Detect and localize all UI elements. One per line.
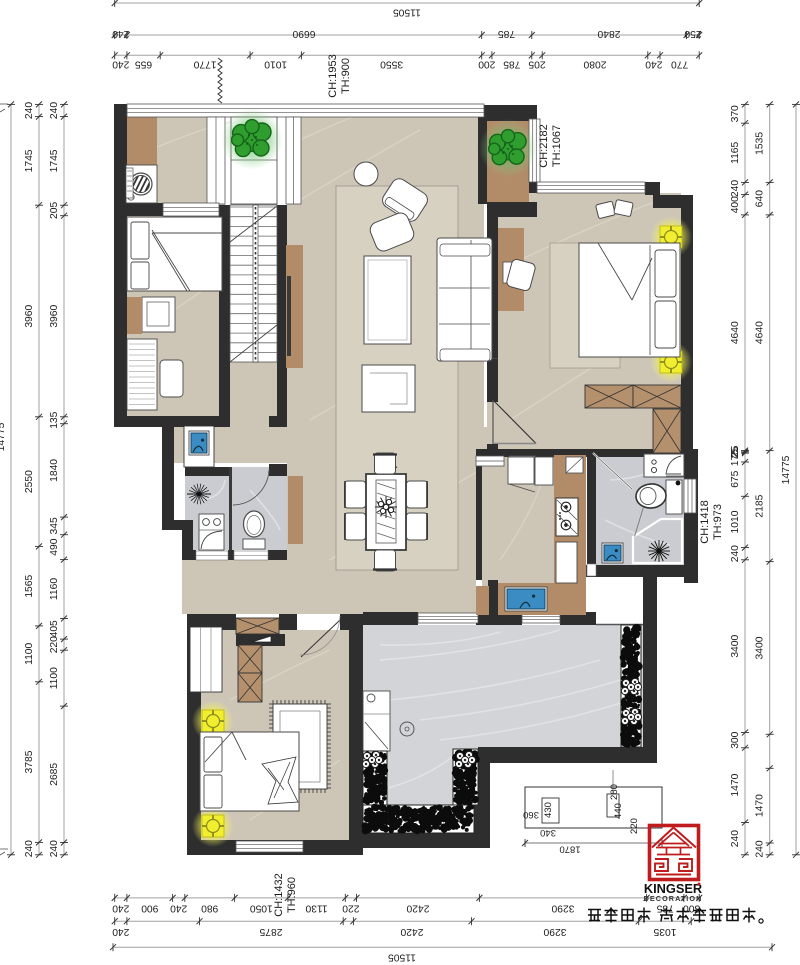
svg-text:1160: 1160 [49, 578, 60, 600]
svg-text:205: 205 [528, 59, 545, 70]
svg-text:3400: 3400 [755, 636, 766, 659]
svg-text:240: 240 [49, 102, 60, 119]
svg-text:240: 240 [112, 926, 129, 937]
svg-text:3290: 3290 [543, 926, 566, 937]
svg-text:280: 280 [609, 784, 620, 800]
svg-text:440: 440 [613, 803, 624, 819]
svg-text:3960: 3960 [49, 304, 60, 327]
svg-text:3960: 3960 [24, 304, 35, 327]
svg-text:655: 655 [135, 59, 152, 70]
svg-text:340: 340 [540, 827, 556, 838]
svg-text:175: 175 [730, 449, 741, 466]
svg-text:240: 240 [112, 59, 129, 70]
svg-text:490: 490 [49, 538, 60, 555]
svg-text:220: 220 [49, 636, 60, 653]
svg-text:14775: 14775 [781, 455, 792, 484]
svg-text:CH:1418: CH:1418 [699, 500, 711, 543]
svg-text:2420: 2420 [400, 926, 423, 937]
svg-text:675: 675 [730, 470, 741, 487]
svg-text:405: 405 [49, 620, 60, 637]
svg-text:CH:1432: CH:1432 [273, 873, 285, 916]
svg-text:1470: 1470 [755, 794, 766, 817]
svg-text:1010: 1010 [730, 510, 741, 533]
svg-text:1745: 1745 [49, 149, 60, 172]
svg-text:6690: 6690 [292, 28, 315, 39]
svg-text:2840: 2840 [597, 28, 620, 39]
svg-text:1565: 1565 [24, 574, 35, 597]
svg-text:240: 240 [112, 28, 129, 39]
svg-text:TH:1067: TH:1067 [551, 125, 563, 167]
svg-text:1100: 1100 [49, 667, 60, 689]
svg-text:1130: 1130 [305, 903, 327, 914]
svg-text:980: 980 [201, 903, 218, 914]
svg-text:360: 360 [523, 809, 539, 820]
svg-text:785: 785 [498, 28, 515, 39]
svg-text:11505: 11505 [388, 952, 416, 963]
svg-text:TH:900: TH:900 [340, 58, 352, 94]
svg-text:1535: 1535 [755, 132, 766, 155]
svg-text:1010: 1010 [264, 59, 287, 70]
svg-text:2550: 2550 [24, 470, 35, 493]
svg-text:370: 370 [730, 105, 741, 122]
svg-text:240: 240 [755, 840, 766, 857]
svg-text:240: 240 [49, 840, 60, 857]
svg-text:1035: 1035 [653, 926, 676, 937]
svg-text:1840: 1840 [49, 459, 60, 482]
svg-text:430: 430 [543, 802, 554, 818]
svg-text:1870: 1870 [559, 844, 580, 855]
svg-text:240: 240 [112, 903, 129, 914]
svg-text:1470: 1470 [730, 773, 741, 796]
svg-text:11505: 11505 [393, 7, 421, 18]
svg-text:CH:2182: CH:2182 [538, 124, 550, 167]
svg-text:2420: 2420 [406, 903, 429, 914]
svg-text:220: 220 [629, 818, 640, 834]
svg-text:200: 200 [478, 59, 495, 70]
svg-text:3290: 3290 [551, 903, 574, 914]
svg-text:205: 205 [49, 202, 60, 219]
svg-text:3550: 3550 [380, 59, 403, 70]
svg-text:240: 240 [24, 840, 35, 857]
svg-text:1050: 1050 [250, 903, 273, 914]
svg-text:770: 770 [671, 59, 688, 70]
svg-text:400: 400 [730, 196, 741, 213]
svg-text:3400: 3400 [730, 634, 741, 657]
svg-text:785: 785 [503, 59, 520, 70]
svg-text:240: 240 [645, 59, 662, 70]
svg-text:4640: 4640 [730, 321, 741, 344]
svg-text:240: 240 [730, 830, 741, 847]
svg-text:CH:1953: CH:1953 [327, 54, 339, 97]
svg-text:240: 240 [170, 903, 187, 914]
svg-text:1770: 1770 [193, 59, 216, 70]
svg-text:2080: 2080 [583, 59, 606, 70]
svg-text:TH:973: TH:973 [712, 504, 724, 540]
svg-text:220: 220 [342, 903, 359, 914]
svg-text:TH:960: TH:960 [286, 877, 298, 913]
svg-text:250: 250 [684, 28, 701, 39]
svg-text:3785: 3785 [24, 750, 35, 773]
svg-text:DECORATION: DECORATION [644, 894, 703, 903]
svg-text:4640: 4640 [755, 321, 766, 344]
svg-text:640: 640 [755, 190, 766, 207]
svg-text:900: 900 [141, 903, 158, 914]
svg-text:300: 300 [730, 731, 741, 748]
svg-text:240: 240 [730, 180, 741, 197]
svg-text:2875: 2875 [259, 926, 282, 937]
svg-text:345: 345 [49, 517, 60, 534]
svg-text:1745: 1745 [24, 149, 35, 172]
svg-text:735: 735 [656, 903, 673, 914]
svg-text:1165: 1165 [730, 141, 741, 163]
svg-text:240: 240 [24, 102, 35, 119]
svg-text:2685: 2685 [49, 763, 60, 786]
svg-text:2185: 2185 [755, 494, 766, 517]
svg-text:1100: 1100 [24, 642, 35, 664]
svg-text:135: 135 [49, 411, 60, 428]
svg-text:14775: 14775 [0, 422, 7, 451]
svg-text:240: 240 [730, 545, 741, 562]
